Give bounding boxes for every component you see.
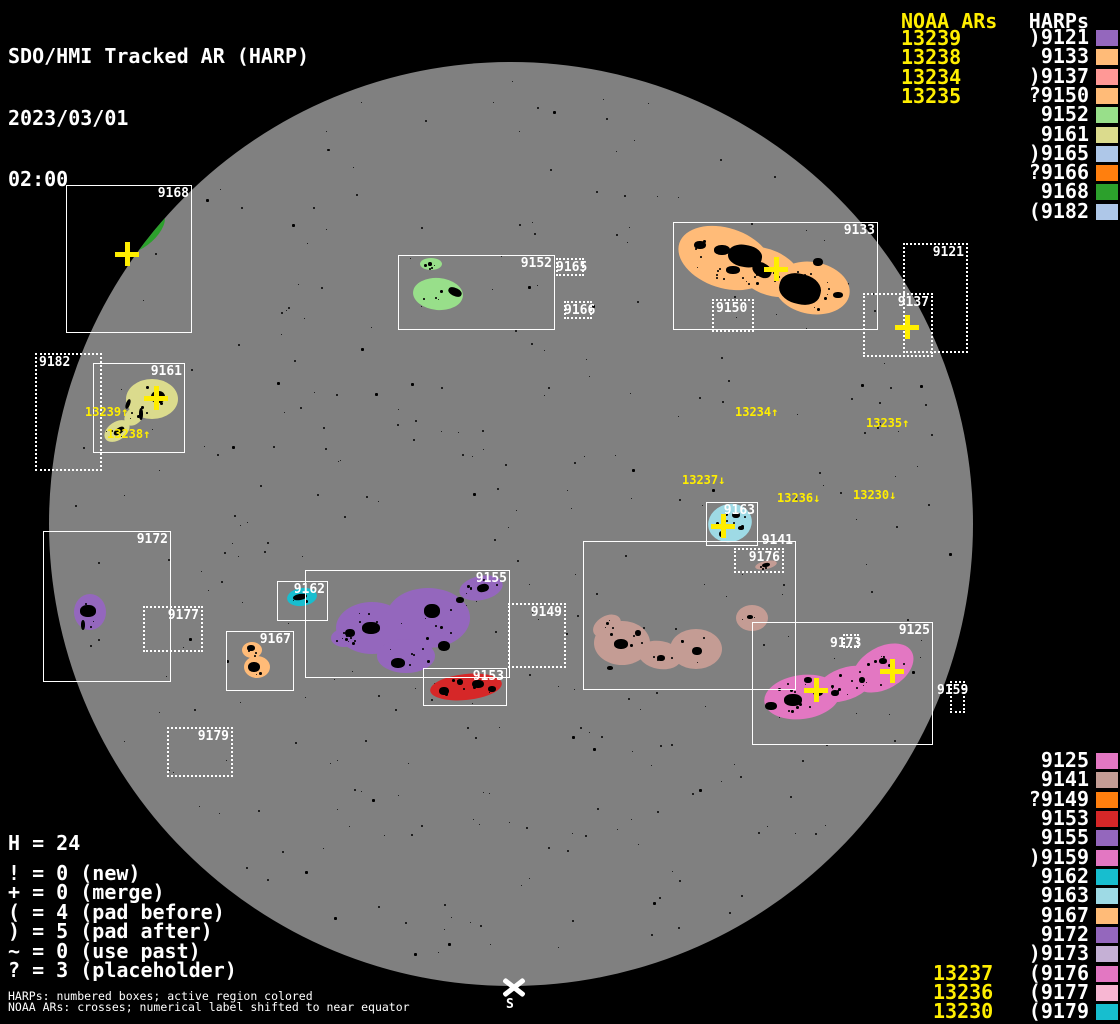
footnote-noaa: NOAA ARs: crosses; numerical label shift…: [8, 1002, 410, 1013]
sdo-hmi-harp-map: 9168918291619152916591669133915091219137…: [0, 0, 1120, 1024]
legend-line-placeholder: ? = 3 (placeholder): [8, 961, 237, 980]
legend: ! = 0 (new) + = 0 (merge) ( = 4 (pad bef…: [8, 864, 237, 980]
noaa-ar-number: 13230: [933, 1002, 993, 1021]
harp-count: H = 24: [8, 831, 80, 855]
